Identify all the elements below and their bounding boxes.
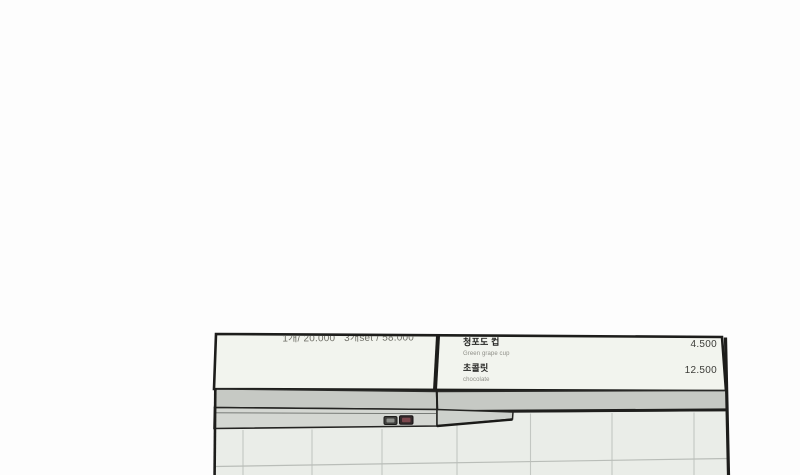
menu-item-subtitle: Green grape cup [463, 351, 510, 357]
menu-item-name: 초콜릿 [463, 364, 488, 373]
scene-graphics [0, 0, 800, 475]
menu-item-subtitle: chocolate [463, 377, 490, 383]
switch-right [400, 416, 414, 425]
menu-item-price: 12.500 [617, 366, 717, 377]
menu-item-name: 청포도 컵 [463, 338, 500, 347]
left-board-price-line: 1개/ 20.000 3개set / 58.000 [276, 336, 414, 345]
switch-left [384, 417, 397, 425]
frame-left-border [215, 388, 216, 475]
left-board-price-line-text: 1개/ 20.000 3개set / 58.000 [276, 336, 414, 345]
shelf-band-left [215, 389, 438, 410]
menu-item-price: 4.500 [617, 340, 717, 351]
cafe-menu-photo: 1개/ 20.000 3개set / 58.000 청포도 컵 Green gr… [0, 0, 800, 475]
